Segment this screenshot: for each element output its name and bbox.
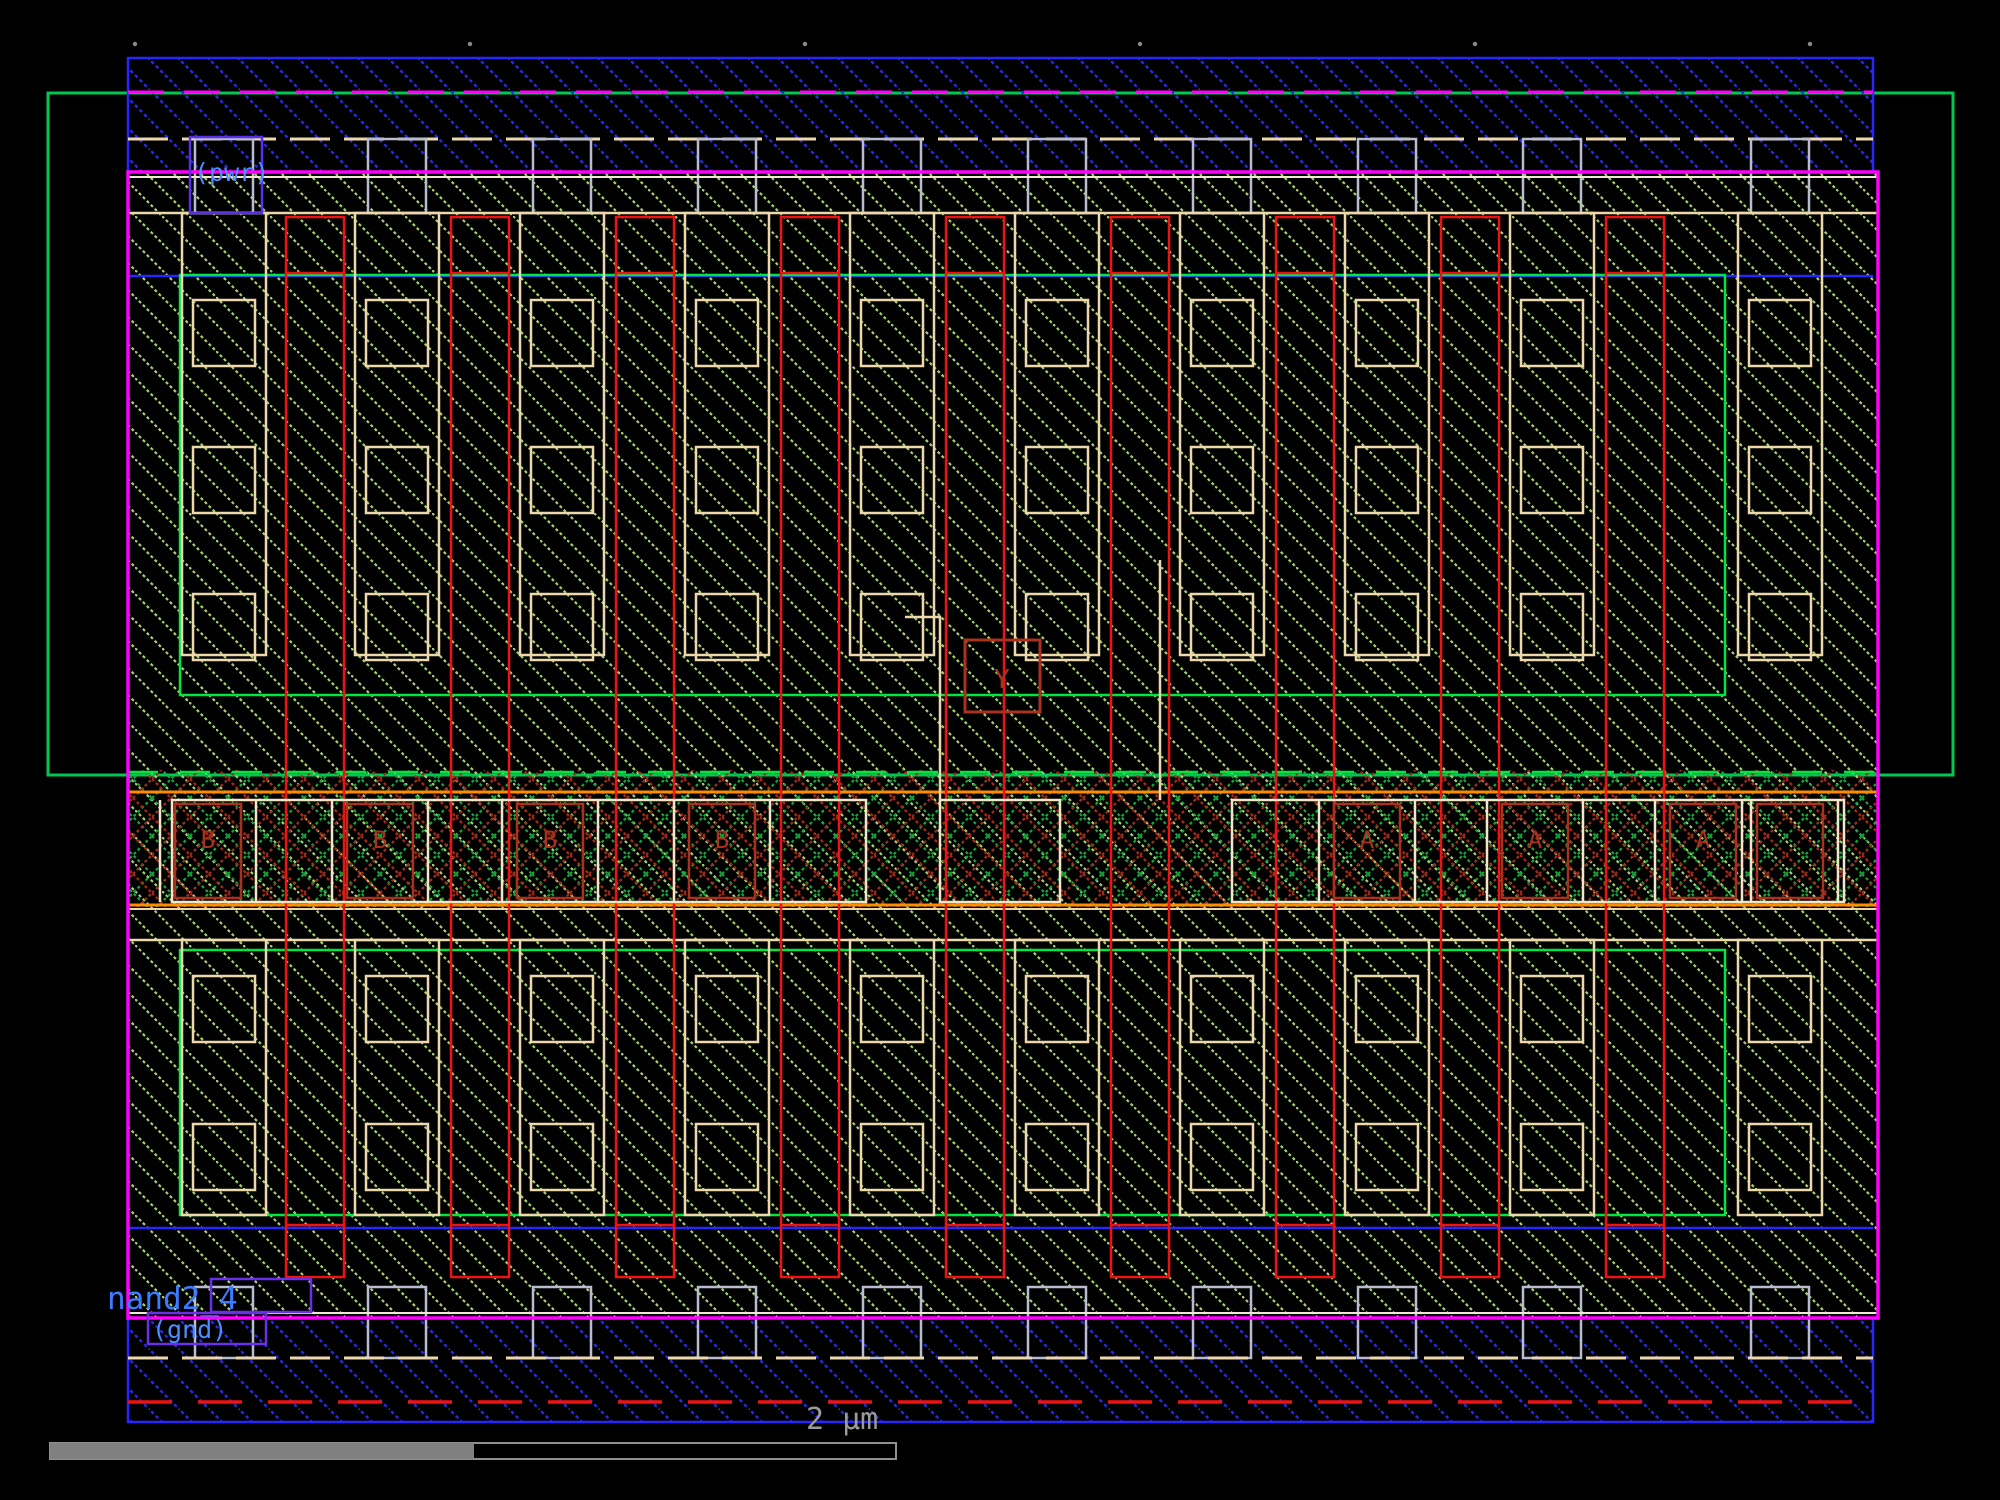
grid-dot [1138, 42, 1142, 46]
port-label[interactable]: B [543, 826, 557, 854]
layout-viewer-stage: BBBBAAA Y (pwr) nand2_4 (gnd) 2 µm [0, 0, 2000, 1500]
pwr-label[interactable]: (pwr) [194, 158, 269, 187]
port-label[interactable]: A [1360, 826, 1375, 854]
layout-canvas[interactable]: BBBBAAA Y (pwr) nand2_4 (gnd) 2 µm [0, 0, 2000, 1500]
vdd-rail[interactable] [128, 58, 1873, 172]
grid-dot [1808, 42, 1812, 46]
port-label[interactable]: B [373, 826, 387, 854]
grid-dot [133, 42, 137, 46]
gnd-label[interactable]: (gnd) [152, 1315, 227, 1344]
port-label[interactable]: A [1696, 826, 1711, 854]
scale-bar-fill [50, 1443, 474, 1459]
port-label[interactable]: A [1528, 826, 1543, 854]
port-label[interactable]: B [201, 826, 215, 854]
grid-dot [803, 42, 807, 46]
grid-dot [1473, 42, 1477, 46]
gnd-rail[interactable] [128, 1318, 1873, 1422]
scale-bar-label: 2 µm [806, 1402, 878, 1437]
grid-dot [468, 42, 472, 46]
port-label[interactable]: B [715, 826, 729, 854]
output-label[interactable]: Y [994, 665, 1010, 695]
